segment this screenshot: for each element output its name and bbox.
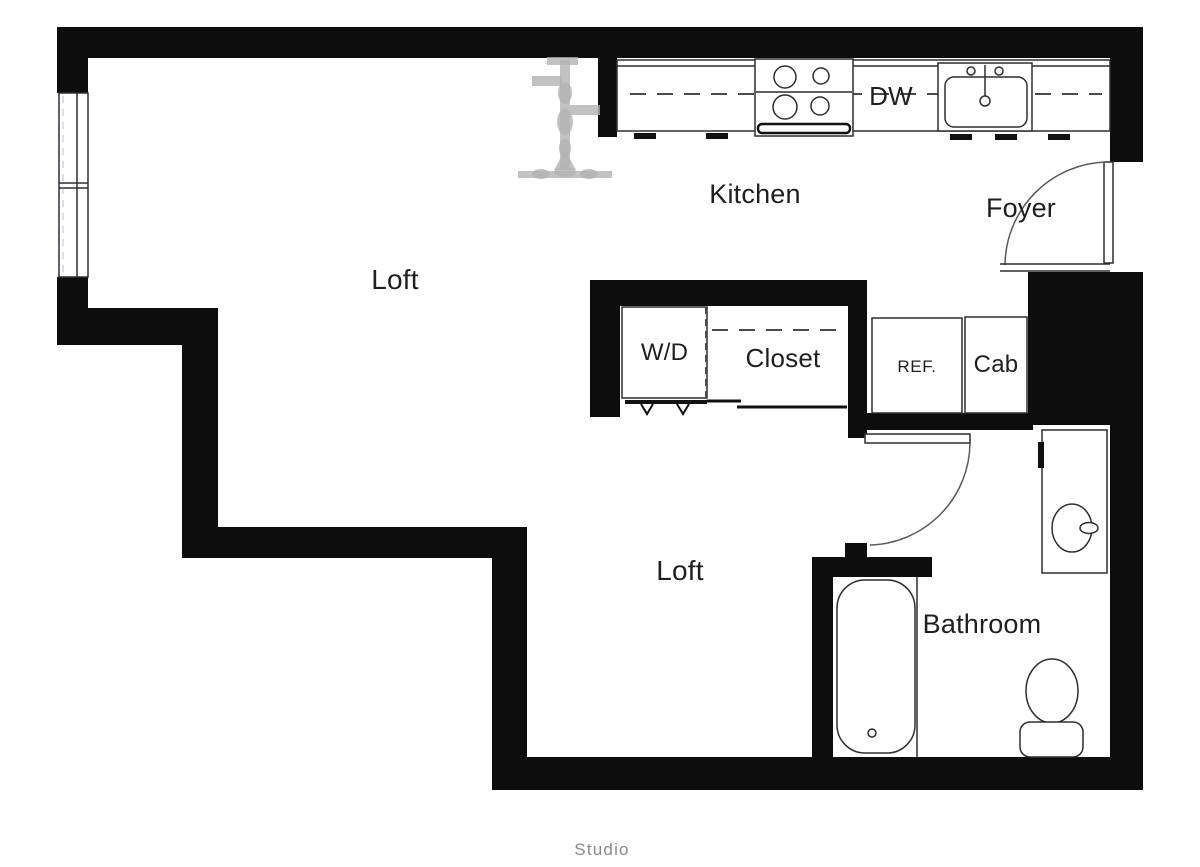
label-cabinet: Cab — [965, 353, 1027, 377]
fixture-linework — [0, 0, 1200, 867]
toilet-bowl — [1026, 659, 1078, 723]
label-washer-dryer: W/D — [622, 341, 707, 365]
bathtub — [837, 577, 917, 757]
bathroom-vanity — [1038, 430, 1107, 573]
bathroom-door-leaf — [865, 434, 970, 443]
bathroom-door — [865, 434, 970, 545]
label-loft-lower: Loft — [630, 557, 730, 585]
kitchen-sink — [938, 63, 1032, 131]
label-refrigerator: REF. — [872, 358, 962, 375]
plan-title: Studio — [540, 840, 664, 860]
label-foyer: Foyer — [971, 195, 1071, 222]
vanity-wall-tick — [1038, 442, 1044, 468]
label-bathroom: Bathroom — [902, 611, 1062, 638]
window — [59, 93, 88, 277]
label-kitchen: Kitchen — [695, 181, 815, 208]
stove — [755, 59, 853, 136]
label-loft-upper: Loft — [345, 266, 445, 294]
bifold-mark-right — [677, 404, 689, 414]
bifold-mark-left — [641, 404, 653, 414]
floor-plan: Loft Kitchen Foyer Loft Bathroom DW W/D … — [0, 0, 1200, 867]
light-fixture-sketch — [518, 57, 612, 179]
entry-door-leaf — [1104, 162, 1113, 263]
toilet-tank — [1020, 722, 1083, 757]
label-closet: Closet — [710, 345, 856, 371]
vanity-faucet — [1080, 523, 1098, 534]
toilet — [1020, 659, 1083, 757]
bathroom-door-swing-arc — [870, 443, 970, 545]
label-dishwasher: DW — [861, 83, 921, 109]
